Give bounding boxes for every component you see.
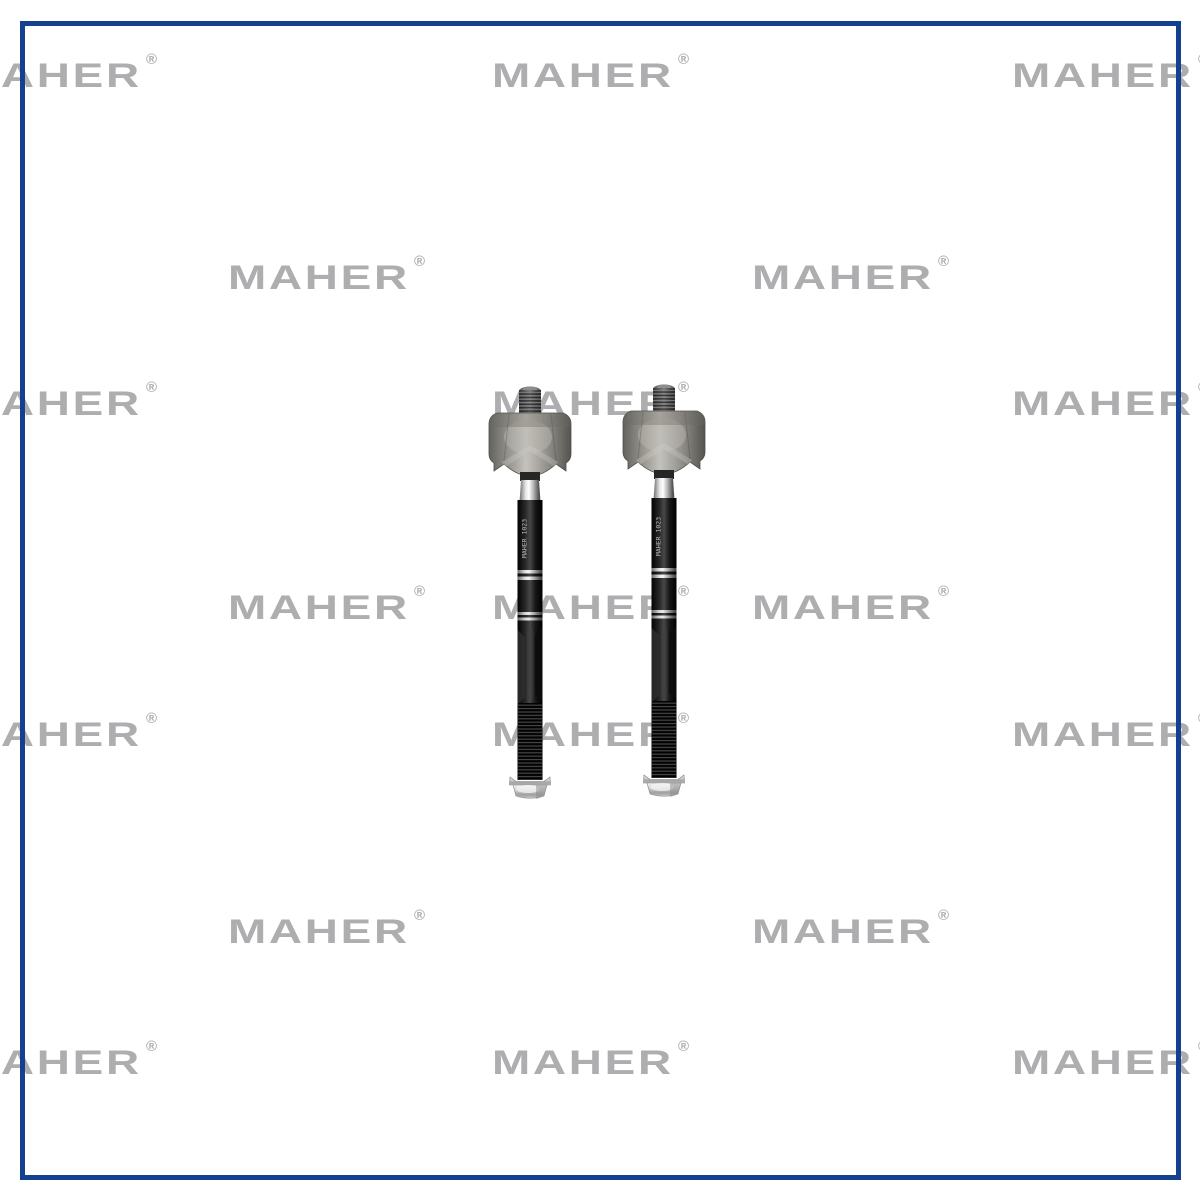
tie-rods-photo: MAHER 1023: [0, 0, 1200, 1200]
tie-rod-right: [623, 384, 705, 797]
product-image: MAHER®MAHER®MAHER®MAHER®MAHER®MAHER®MAHE…: [0, 0, 1200, 1200]
tie-rod-left: [489, 386, 571, 799]
